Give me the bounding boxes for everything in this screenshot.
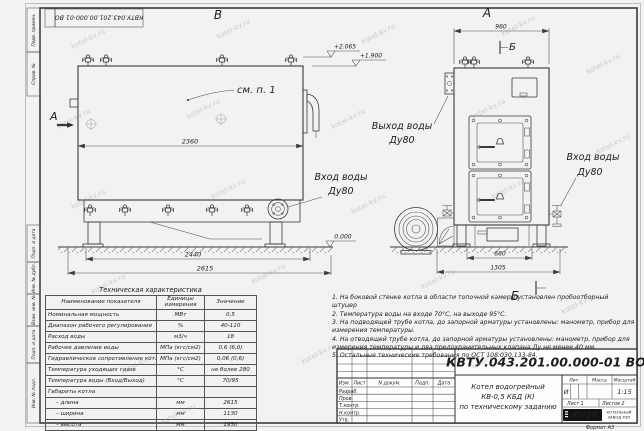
side-label: Перв. примен.	[31, 14, 37, 47]
section-b-letter: Б	[509, 42, 516, 53]
table-cell: мм	[157, 420, 205, 431]
drain-valve-icon	[120, 205, 131, 216]
note-2: 2. Температура воды на входе 70°С, на вы…	[332, 311, 635, 319]
frame-side-column: Перв. примен. Справ. № Подп. и дата Инв.…	[27, 8, 40, 423]
table-cell: Диапазон рабочего регулирования	[46, 321, 157, 332]
side-label: Подп. и дата	[31, 329, 37, 359]
elevation-0000: 0.000	[326, 234, 356, 248]
water-outlet-label: Выход воды Ду80	[372, 96, 448, 146]
title-block: КВТУ.043.201.00.000-01 ВО Изм. Лист N до…	[337, 349, 644, 430]
table-cell: м3/ч	[157, 332, 205, 343]
dim-text: 960	[495, 24, 507, 31]
table-cell: Гидравлическое сопротивление котла	[46, 354, 157, 365]
dim-text: 2615	[197, 265, 214, 273]
table-cell: Температура воды (Вход/Выход)	[46, 376, 157, 387]
side-label: Справ. №	[31, 63, 37, 85]
table-row: Габариты котла	[46, 387, 257, 398]
table-cell: мм	[157, 398, 205, 409]
drain-valve-icon	[163, 205, 174, 216]
table-cell: Температура уходящих газов	[46, 365, 157, 376]
ground-line	[390, 247, 568, 253]
table-cell: 40-110	[205, 321, 257, 332]
fan-duct	[438, 218, 455, 246]
rev-header: Лист	[352, 380, 365, 386]
note-5: 5. Остальные технические требования по О…	[332, 352, 635, 360]
boiler-body-front	[454, 68, 549, 225]
valve-icon	[83, 55, 94, 66]
dim-2360: 2360	[78, 138, 303, 147]
note-1: 1. На боковой стенке котла в области топ…	[332, 294, 635, 310]
sign-row-label: Н.контр.	[339, 410, 360, 416]
table-cell: МПа (кгс/см2)	[157, 343, 205, 354]
sign-row-label: Разраб.	[339, 389, 358, 395]
furnace-door-lower	[469, 171, 531, 222]
valve-icon	[286, 55, 297, 66]
table-cell: Рабочее давление воды	[46, 343, 157, 354]
table-cell: не более 280	[205, 365, 257, 376]
tech-table: Наименование показателя Единицы измерени…	[45, 295, 257, 431]
table-cell: 0,06 (0,6)	[205, 354, 257, 365]
table-cell: °С	[157, 376, 205, 387]
top-stamp: КВТУ.043.201.00.000-01 ВО	[45, 9, 143, 27]
lit-label: Лит.	[568, 378, 580, 384]
table-cell: МВт	[157, 310, 205, 321]
table-row: Номинальная мощностьМВт0,5	[46, 310, 257, 321]
lifting-lug-marks	[85, 113, 227, 130]
table-cell: 0,6 (6,0)	[205, 343, 257, 354]
table-cell	[157, 387, 205, 398]
section-a-marker: А	[49, 110, 74, 128]
table-row: – ширинамм1130	[46, 409, 257, 420]
table-cell: °С	[157, 365, 205, 376]
table-row: Температура уходящих газов°Сне более 280	[46, 365, 257, 376]
sign-row-label: Пров.	[339, 396, 353, 402]
table-row: Рабочее давление водыМПа (кгс/см2)0,6 (6…	[46, 343, 257, 354]
support-legs	[83, 222, 285, 247]
mass-label: Масса	[592, 378, 607, 384]
table-cell: – ширина	[46, 409, 157, 420]
inlet-label-line1: Вход воды	[566, 152, 620, 163]
callout-see-note-1: см. п. 1	[187, 85, 276, 101]
boiler-front-view: А 960 Б	[372, 6, 620, 303]
table-cell: Номинальная мощность	[46, 310, 157, 321]
dim-text: 2360	[182, 138, 199, 146]
rev-header: Дата	[437, 380, 450, 386]
drain-valve-icon	[207, 205, 218, 216]
table-header-cell: Единицы измерения	[157, 296, 205, 310]
ash-door	[487, 228, 518, 241]
rev-header: N докум.	[378, 380, 400, 386]
table-cell: %	[157, 321, 205, 332]
lit-value: И	[564, 388, 569, 396]
dim-960: 960	[454, 24, 549, 65]
scale-label: Масштаб	[614, 378, 636, 384]
company-name-line2: ЗАВОД РЭП	[608, 415, 631, 420]
table-header-row: Наименование показателя Единицы измерени…	[46, 296, 257, 310]
side-label: Инв. № подл.	[31, 378, 37, 408]
section-b-marker-top: Б	[500, 41, 516, 54]
table-row: Расход водым3/ч18	[46, 332, 257, 343]
outlet-label-line2: Ду80	[388, 135, 414, 146]
table-cell: 0,5	[205, 310, 257, 321]
door-latch	[497, 138, 504, 144]
format-label: Формат А3	[586, 425, 614, 430]
side-valve-icon	[442, 206, 454, 217]
valve-icon	[523, 57, 534, 68]
elevation-2065: +2.065	[303, 44, 360, 58]
table-cell: 1130	[205, 409, 257, 420]
stamp-doc-number: КВТУ.043.201.00.000-01 ВО	[55, 14, 144, 21]
inlet-label-line1: Вход воды	[314, 172, 368, 183]
valve-icon	[101, 55, 112, 66]
sign-row-label: Т.контр.	[339, 403, 360, 409]
rev-header: Изм.	[339, 380, 350, 386]
side-label: Подп. и дата	[31, 228, 37, 258]
table-cell	[205, 387, 257, 398]
table-cell: 2615	[205, 398, 257, 409]
note-4: 4. На отводящей трубе котла, до запорной…	[332, 336, 635, 352]
sign-row-label: Утв.	[339, 418, 349, 424]
logo-text: KVZR	[573, 411, 599, 421]
sheet-number: Лист 1	[566, 401, 584, 407]
door-latch	[497, 193, 504, 199]
sheet-count: Листов 2	[601, 401, 625, 407]
furnace-door-upper	[469, 116, 531, 169]
product-name-line3: по техническому заданию	[459, 403, 556, 411]
water-outlet-flange	[445, 73, 454, 94]
outlet-label-line1: Выход воды	[372, 121, 433, 132]
table-cell: Габариты котла	[46, 387, 157, 398]
note-3: 3. На подводящей трубе котла, до запорно…	[332, 319, 635, 335]
table-cell: – длина	[46, 398, 157, 409]
product-name-line1: Котел водогрейный	[471, 383, 545, 391]
product-name-line2: КВ-0,5 КБД (К)	[481, 393, 535, 401]
water-inlet-flange	[268, 199, 288, 219]
drawing-sheet: Перв. примен. Справ. № Подп. и дата Инв.…	[0, 0, 644, 430]
dim-text: 2440	[185, 251, 202, 259]
table-row: Диапазон рабочего регулирования%40-110	[46, 321, 257, 332]
inlet-label-line2: Ду80	[327, 186, 353, 197]
table-cell: МПа (кгс/см2)	[157, 354, 205, 365]
inlet-valve-icon	[549, 206, 562, 227]
view-b-label: В	[214, 8, 222, 22]
technical-notes: 1. На боковой стенке котла в области топ…	[332, 294, 635, 361]
scale-value: 1:15	[617, 388, 632, 396]
table-cell: 18	[205, 332, 257, 343]
table-header-cell: Значение	[205, 296, 257, 310]
valve-icon	[217, 55, 228, 66]
dim-text: 1305	[490, 265, 505, 272]
table-cell: мм	[157, 409, 205, 420]
table-cell: – высота	[46, 420, 157, 431]
table-row: Температура воды (Вход/Выход)°С70/95	[46, 376, 257, 387]
drain-valve-icon	[242, 205, 253, 216]
elevation-text: +2.065	[334, 44, 356, 51]
elevation-text: +1.900	[360, 53, 382, 60]
company-logo: KVZR КОТЕЛЬНЫЙ ЗАВОД РЭП	[563, 409, 632, 421]
elevation-1900: +1.900	[312, 53, 386, 67]
table-title: Техническая характеристика	[45, 286, 256, 294]
water-inlet-label-a: Вход воды Ду80	[561, 152, 620, 205]
table-cell: 70/95	[205, 376, 257, 387]
table-row: – высотамм1950	[46, 420, 257, 431]
view-a-label: А	[482, 6, 491, 20]
rev-header: Подп.	[415, 380, 430, 386]
table-cell: Расход воды	[46, 332, 157, 343]
callout-text: см. п. 1	[237, 85, 276, 96]
drain-valve-icon	[85, 205, 96, 216]
dim-text: 660	[494, 251, 506, 258]
boiler-side-view: В см. п. 1 А 2360	[49, 8, 386, 275]
base-frame-front	[453, 225, 550, 247]
nameplate	[512, 78, 537, 97]
section-a-letter: А	[49, 110, 58, 123]
side-label: Взам. инв. №	[31, 295, 37, 325]
tech-characteristics-table: Техническая характеристика Наименование …	[45, 286, 256, 431]
table-row: Гидравлическое сопротивление котлаМПа (к…	[46, 354, 257, 365]
inlet-label-line2: Ду80	[576, 167, 602, 178]
table-cell: 1950	[205, 420, 257, 431]
table-row: – длинамм2615	[46, 398, 257, 409]
boiler-base-band	[84, 200, 300, 222]
side-label: Инв. № дубл.	[31, 263, 37, 293]
table-header-cell: Наименование показателя	[46, 296, 157, 310]
elevation-text: 0.000	[334, 234, 351, 241]
outlet-elbow	[303, 90, 319, 138]
